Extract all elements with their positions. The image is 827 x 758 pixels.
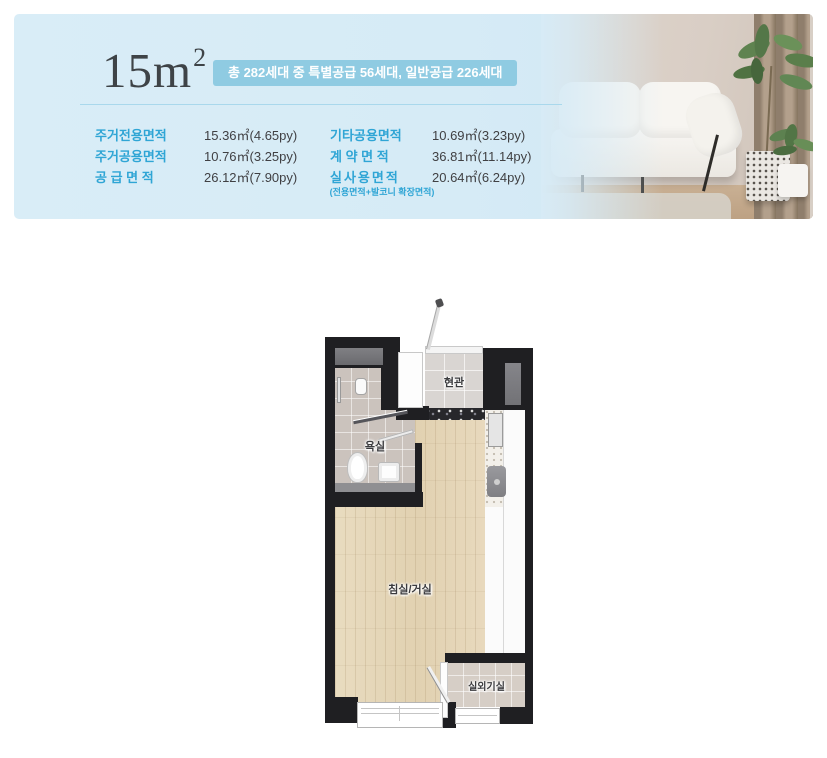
area-value: 36.81㎡(11.14py) [432, 147, 532, 167]
photo-fade [541, 14, 813, 219]
unit-size-title: 15m2 [102, 42, 206, 99]
room-label-bath: 욕실 [335, 438, 415, 454]
area-row: 주거전용면적 15.36㎡(4.65py) 기타공용면적 10.69㎡(3.23… [14, 126, 574, 146]
area-row: 주거공용면적 10.76㎡(3.25py) 계 약 면 적 36.81㎡(11.… [14, 147, 574, 167]
unit-size-superscript: 2 [193, 43, 207, 72]
unit-summary-panel: 15m2 총 282세대 중 특별공급 56세대, 일반공급 226세대 주거전… [14, 14, 813, 219]
duct-box [505, 363, 521, 405]
area-row: 공 급 면 적 26.12㎡(7.90py) 실사용면적 20.64㎡(6.24… [14, 168, 574, 188]
window-track [361, 708, 439, 709]
wall [325, 337, 335, 723]
refrigerator [488, 413, 503, 447]
wall [445, 653, 533, 663]
area-label: 공 급 면 적 [95, 168, 154, 188]
front-door-handle [435, 298, 444, 308]
shower-rail [337, 377, 341, 403]
bathroom-curb [335, 483, 415, 492]
side-strip-lower [485, 507, 503, 653]
shower-head [355, 378, 367, 395]
area-label: 주거전용면적 [95, 126, 167, 146]
living-window [357, 702, 443, 728]
unit-size-number: 15m [102, 43, 192, 98]
header-divider [80, 104, 562, 105]
area-value: 10.76㎡(3.25py) [204, 147, 297, 167]
shoe-closet [398, 352, 423, 408]
wall [525, 410, 533, 723]
room-label-outdoor: 실외기실 [448, 678, 525, 693]
area-value: 20.64㎡(6.24py) [432, 168, 525, 188]
area-label: 실사용면적 [330, 168, 400, 188]
area-value: 26.12㎡(7.90py) [204, 168, 297, 188]
front-door-leaf [426, 300, 442, 349]
room-label-entry: 현관 [425, 374, 483, 390]
outdoor-window [455, 708, 500, 724]
area-value: 10.69㎡(3.23py) [432, 126, 525, 146]
entry-mat [425, 408, 485, 420]
wall-vent [335, 348, 383, 365]
area-footnote: (전용면적+발코니 확장면적) [317, 187, 447, 198]
area-label: 기타공용면적 [330, 126, 402, 146]
area-label: 주거공용면적 [95, 147, 167, 167]
wall [415, 443, 422, 492]
toilet [347, 452, 368, 483]
window-track [361, 713, 439, 714]
wall [335, 492, 423, 507]
front-door-threshold [425, 346, 483, 354]
area-value: 15.36㎡(4.65py) [204, 126, 297, 146]
washbasin [378, 462, 400, 482]
side-strip [503, 410, 525, 653]
page: 15m2 총 282세대 중 특별공급 56세대, 일반공급 226세대 주거전… [0, 0, 827, 758]
area-label: 계 약 면 적 [330, 147, 389, 167]
wall [500, 707, 533, 724]
floor-plan: 현관 욕실 침실/거실 실외기실 [322, 298, 534, 730]
washer-door [494, 479, 500, 485]
window-divider [399, 706, 400, 721]
window-track [458, 715, 497, 716]
supply-badge: 총 282세대 중 특별공급 56세대, 일반공급 226세대 [213, 60, 517, 86]
hero-photo [541, 14, 813, 219]
room-label-living: 침실/거실 [335, 581, 485, 597]
wall [325, 697, 358, 723]
